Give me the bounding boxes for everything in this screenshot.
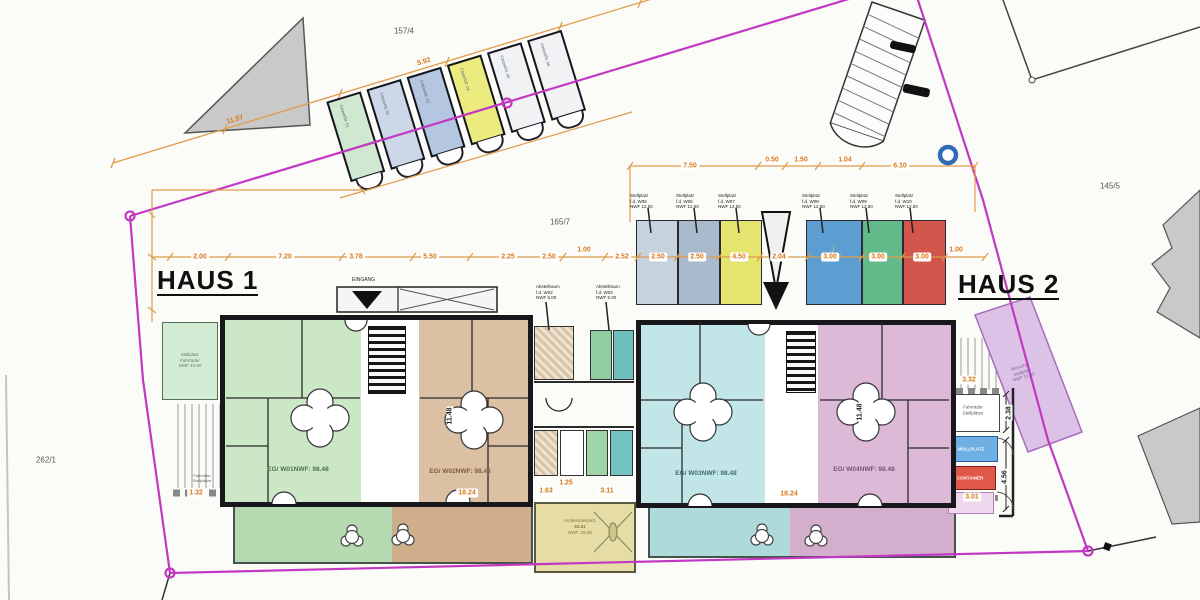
dimension-value: 1.25 xyxy=(557,479,575,488)
neighbor-building-bottomright xyxy=(1138,408,1200,524)
site-plan: CarportSt. 01 CarportSt. 02 CarportSt. 0… xyxy=(0,0,1200,600)
street-parking-strip xyxy=(826,2,925,154)
entrance-label: EINGANG xyxy=(352,278,375,284)
apartment-label-w01: EG/ W01NWF: 98.48 xyxy=(267,466,328,474)
parcel-number: 262/1 xyxy=(36,456,56,465)
storage-box-teal xyxy=(613,330,634,380)
dimension-value: 2.50 xyxy=(540,253,558,262)
right-bike-label: FahrräderStellplätze xyxy=(963,405,984,416)
dimension-value: 7.20 xyxy=(276,253,294,262)
dimension-value: 7.50 xyxy=(681,162,699,171)
playground-area xyxy=(534,502,636,573)
dimension-value: 3.78 xyxy=(347,253,365,262)
parking-stall xyxy=(720,220,762,305)
haus1-title: HAUS 1 xyxy=(157,266,258,296)
left-fence-label: FahrräderStellplätze xyxy=(193,473,211,483)
haus2-title: HAUS 2 xyxy=(958,270,1059,300)
apartment-label-w04: EG/ W04NWF: 98.48 xyxy=(833,466,894,474)
dimension-value: 6.10 xyxy=(891,162,909,171)
dimension-value: 2.50 xyxy=(649,253,667,262)
annex-label: MüllplatzFahrräderNWF 10.50 xyxy=(179,352,202,369)
dimension-value: 2.52 xyxy=(613,253,631,262)
parking-stall: ⚓ xyxy=(806,220,862,305)
neighbor-building-right xyxy=(1152,190,1200,338)
dimension-value: 1.00 xyxy=(947,246,965,255)
dimension-value: 1.04 xyxy=(836,156,854,165)
dimension-value: 3.32 xyxy=(960,376,978,385)
storage-box-hatched2 xyxy=(534,430,558,476)
dimension-value: 1.00 xyxy=(575,246,593,255)
dimension-value: 3.00 xyxy=(821,253,839,262)
dimension-value: 18.24 xyxy=(778,490,800,499)
stall-label: Stellplatzf.d. W09NWF 12.50 xyxy=(850,193,873,210)
parcel-number: 145/5 xyxy=(1100,182,1120,191)
dimension-value: 1.50 xyxy=(792,156,810,165)
dimension-value: 0.50 xyxy=(763,156,781,165)
survey-ring-icon xyxy=(940,147,956,163)
staircase-haus1 xyxy=(368,326,406,394)
stall-label: Stellplatzf.d. W05NWF 12.50 xyxy=(630,193,653,210)
dimension-value: 3.11 xyxy=(598,487,615,496)
apartment-w04 xyxy=(818,325,951,503)
dimension-value: 2.00 xyxy=(191,253,209,262)
terrace-w04 xyxy=(790,508,954,556)
dimension-value-vertical: 4.56 xyxy=(1002,469,1009,485)
terrace-w01 xyxy=(235,506,392,562)
storage-box-teal2 xyxy=(610,430,633,476)
storage-box-green2 xyxy=(586,430,608,476)
dimension-value: 5.50 xyxy=(421,253,439,262)
dimension-value-vertical: 11.48 xyxy=(857,402,864,421)
apartment-label-w03: EG/ W03NWF: 98.48 xyxy=(675,470,736,478)
storage-box-white xyxy=(560,430,584,476)
stall-label: Stellplatzf.d. W07NWF 12.50 xyxy=(718,193,741,210)
apartment-label-w02: EG/ W02NWF: 98.48 xyxy=(429,468,490,476)
parking-stall xyxy=(903,220,946,305)
dimension-value: 3.00 xyxy=(869,253,887,262)
dimension-value: 2.50 xyxy=(688,253,706,262)
terrace-w02 xyxy=(392,506,531,562)
dimension-value: 18.24 xyxy=(456,489,478,498)
storage-label: Abstellraumf.d. W02NWF 5.00 xyxy=(536,284,560,301)
parking-stall xyxy=(862,220,903,305)
terrace-w03 xyxy=(650,508,790,556)
dimension-value-vertical: 2.38 xyxy=(1006,405,1013,421)
dimension-value: 4.50 xyxy=(730,253,748,262)
parcel-number: 157/4 xyxy=(394,27,414,36)
stall-label: Stellplatzf.d. W08NWF 12.50 xyxy=(802,193,825,210)
dimension-value: 1.32 xyxy=(187,489,205,498)
storage-box-green xyxy=(590,330,612,380)
parcel-edge-left xyxy=(6,375,9,600)
stall-label: Stellplatzf.d. W10NWF 12.50 xyxy=(895,193,918,210)
survey-point xyxy=(1029,77,1035,83)
storage-box-hatched xyxy=(534,326,574,380)
dimension-value: 3.00 xyxy=(913,253,931,262)
dimension-value: 2.04 xyxy=(770,253,788,262)
dimension-value-vertical: 11.48 xyxy=(447,406,454,425)
apartment-w01 xyxy=(225,320,361,502)
dimension-value: 1.63 xyxy=(537,487,555,496)
terrace-haus2 xyxy=(648,506,956,558)
staircase-haus2 xyxy=(786,331,816,393)
parking-stall xyxy=(636,220,678,305)
dimension-value: 3.01 xyxy=(963,493,981,502)
parking-stall xyxy=(678,220,720,305)
terrace-haus1 xyxy=(233,504,533,564)
storage-label: Abstellraumf.d. W03NWF 5.00 xyxy=(596,284,620,301)
dimension-value: 2.25 xyxy=(499,253,517,262)
playground-label: Kinderspielplatz 63.51 NWF: 28.90 xyxy=(564,518,596,536)
neighbor-building-topleft xyxy=(185,18,310,133)
car-symbol xyxy=(902,83,930,97)
parcel-number: 165/7 xyxy=(550,218,570,227)
street-edge-line xyxy=(1003,0,1200,80)
boundary-marker xyxy=(1103,542,1112,551)
red-box-label: CONTAINER xyxy=(957,476,983,481)
stall-label: Stellplatzf.d. W06NWF 12.50 xyxy=(676,193,699,210)
blue-box-label: MÜLLPLATZ xyxy=(958,447,985,452)
